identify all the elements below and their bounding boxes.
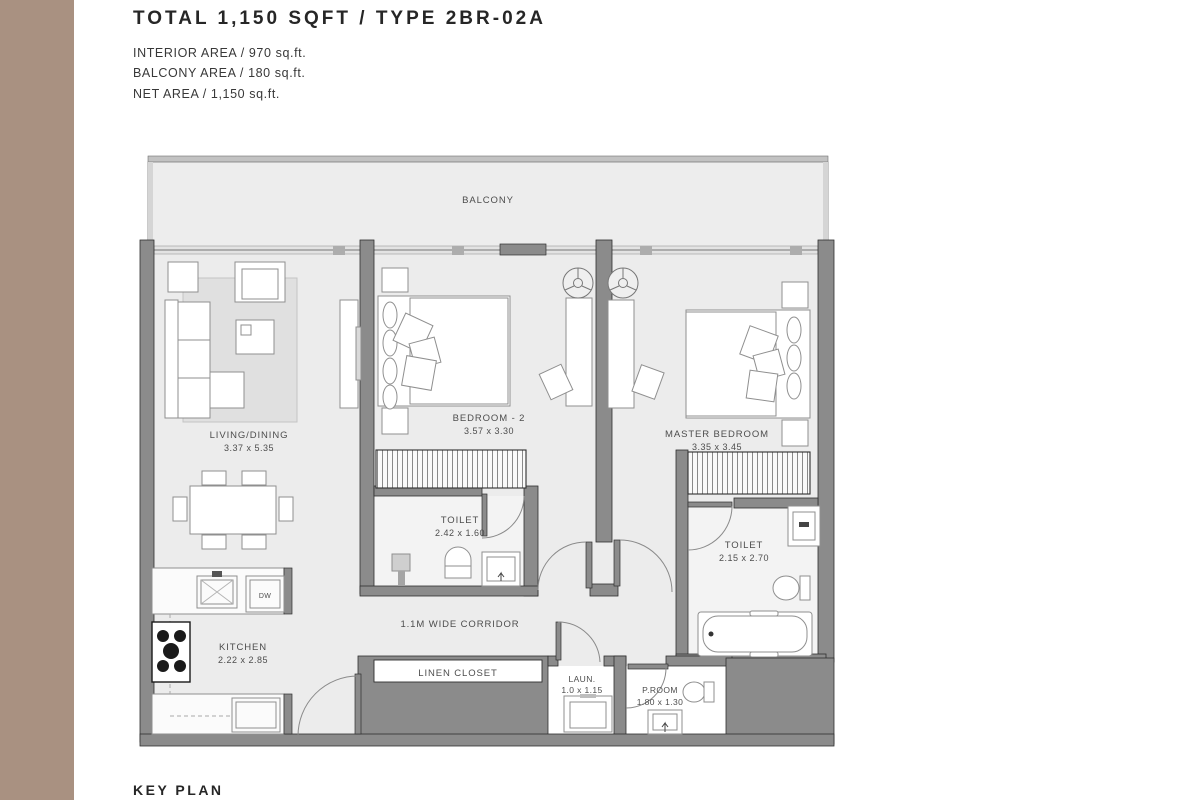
pillow [787,345,801,371]
sofa-cushion [178,378,210,418]
armchair-cushion [242,269,278,299]
dining-chair [242,535,266,549]
tv [356,327,361,380]
tub-drain [709,632,714,637]
ceiling-fan-icon [608,268,638,298]
counter-end-wall [284,694,292,734]
sofa-chaise [210,372,244,408]
burner [174,630,186,642]
key-plan-label: KEY PLAN [133,782,224,798]
burner [157,660,169,672]
proom-dims: 1.80 x 1.30 [637,697,683,707]
wc-base [445,566,471,578]
balcony-left-edge [148,162,153,248]
kitchen-dims: 2.22 x 2.85 [218,655,268,665]
toilet2-dims: 2.15 x 2.70 [719,553,769,563]
pillow [787,317,801,343]
tub-ledge [750,611,778,616]
sofa-back [165,300,178,418]
laundry-door-leaf [556,622,561,660]
sink-faucet [212,571,222,577]
kitchen-label: KITCHEN [219,642,267,653]
living-label: LIVING/DINING [210,430,289,441]
right-wall [818,240,834,662]
bathtub [698,612,812,656]
washer [564,696,612,732]
side-table [168,262,198,292]
burner [174,660,186,672]
dining-chair [202,535,226,549]
pillow [383,358,397,384]
nightstand [782,282,808,308]
laundry-fixtures [564,694,612,732]
bedroom2-dims: 3.57 x 3.30 [464,426,514,436]
living-dims: 3.37 x 5.35 [224,443,274,453]
pillow [787,373,801,399]
corridor-label: 1.1M WIDE CORRIDOR [400,619,519,630]
balcony-label: BALCONY [462,195,514,206]
laundry-label: LAUN. [568,674,595,684]
cushion [746,370,778,402]
toilet1-bottom-wall [360,586,538,596]
dining-chair [173,497,187,521]
bedroom2-door-leaf [586,542,592,588]
desk [608,300,634,408]
master-door-leaf [614,540,620,586]
tub-ledge [750,652,778,657]
sofa-cushion [178,302,210,340]
balcony-railing [148,156,828,162]
tv-console [340,300,358,408]
toilet2-left-wall [676,450,688,662]
proom-door-leaf [628,664,668,669]
pillow [383,330,397,356]
dining-chair [242,471,266,485]
pillow [383,302,397,328]
dining-chair [279,497,293,521]
toilet1-label: TOILET [441,515,479,526]
toilet1-right-wall [524,486,538,596]
burner-center [163,643,179,659]
cushion [402,356,437,391]
basin-faucet [799,522,809,527]
fridge [232,698,280,732]
proom-top-wall [666,656,732,666]
master-dims: 3.35 x 3.45 [692,442,742,452]
balcony-right-edge [823,162,828,248]
toilet2-label: TOILET [725,540,763,551]
coffee-table-decor [241,325,251,335]
nightstand [382,268,408,292]
bottom-right-wall-mass [726,658,834,744]
wc-bowl [773,576,799,600]
dining-table [190,486,276,534]
dining-chair [202,471,226,485]
master-label: MASTER BEDROOM [665,429,769,440]
wc-tank [704,682,714,702]
master-wardrobe [688,452,810,494]
nightstand [382,408,408,434]
linen-closet-label: LINEN CLOSET [418,668,497,679]
floor-plan-drawing: BALCONY LIVING/DINING 3.37 x 5.35 BEDROO… [0,0,1200,800]
proom-label: P.ROOM [642,685,678,695]
sofa-cushion [178,340,210,378]
burner [157,630,169,642]
pillow [383,385,397,409]
toilet1-dims: 2.42 x 1.60 [435,528,485,538]
pedestal-sink-stem [398,571,405,585]
foyer-door-leaf [355,674,361,734]
wc-tank [800,576,810,600]
wc-bowl [683,682,705,702]
laundry-proom-wall [614,656,626,744]
bedroom2-wardrobe [376,450,526,488]
ceiling-fan-icon [563,268,593,298]
living-bed2-partition [360,240,374,594]
bottom-wall [140,734,834,746]
toilet2-door-leaf [688,502,732,507]
laundry-dims: 1.0 x 1.15 [561,685,602,695]
pedestal-sink [392,554,410,571]
bedroom2-label: BEDROOM - 2 [453,413,526,424]
nightstand [782,420,808,446]
counter-end-wall [284,568,292,614]
dishwasher-label: DW [259,593,271,600]
